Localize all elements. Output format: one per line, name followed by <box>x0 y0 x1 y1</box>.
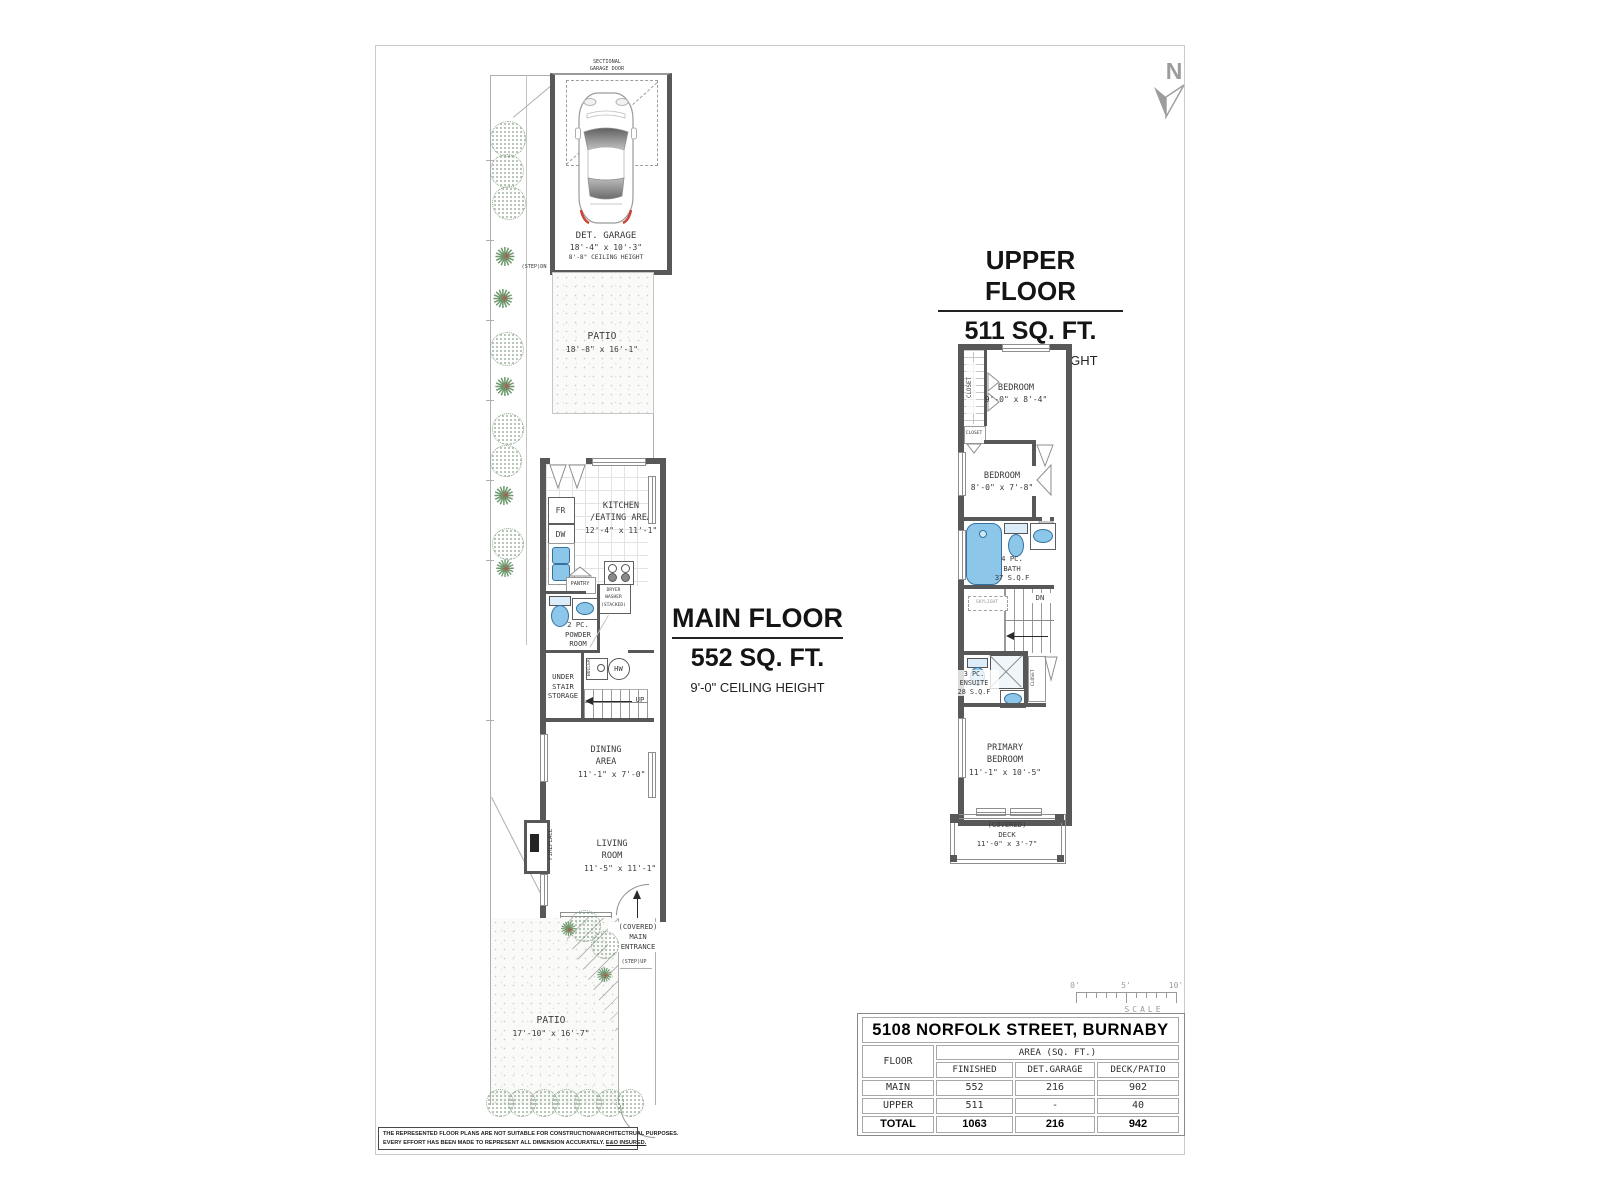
scale-major-tick <box>1076 992 1077 1003</box>
disclaimer-line2-text: EVERY EFFORT HAS BEEN MADE TO REPRESENT … <box>383 1140 606 1146</box>
label-line: GARAGE DOOR <box>562 66 652 73</box>
wall <box>546 718 654 722</box>
kitchen-side-window <box>648 476 656 524</box>
fridge-label: FR <box>548 505 573 517</box>
floor-header-cell: FLOOR <box>862 1045 934 1078</box>
label-line: (COVERED) <box>608 922 668 932</box>
room-name: ROOM <box>584 850 640 862</box>
bath-label: 4 PC. BATH 37 S.Q.F <box>984 554 1040 583</box>
starburst-plant: ✺✳ <box>493 483 515 509</box>
room-name: AREA <box>578 756 634 768</box>
room-ceiling: 8'-8" CEILING HEIGHT <box>552 254 660 263</box>
room-name: BEDROOM <box>980 382 1052 394</box>
living-label: LIVING ROOM 11'-5" x 11'-1" <box>584 838 640 875</box>
shrub-plant <box>591 931 619 959</box>
fence-tick <box>486 240 494 241</box>
row-total-garage: 216 <box>1015 1116 1095 1133</box>
dishwasher-label: DW <box>548 529 573 541</box>
under-stair-storage-label: UNDER STAIR STORAGE <box>539 672 587 701</box>
row-upper-finished: 511 <box>936 1098 1013 1114</box>
label-line: (STACKED) <box>598 602 629 609</box>
label-line: 11'-0" x 3'-7" <box>962 839 1052 849</box>
row-total-deck: 942 <box>1097 1116 1179 1133</box>
scale-major-tick <box>1126 992 1127 1003</box>
bedroom2-label: BEDROOM 8'-0" x 7'-8" <box>966 470 1038 494</box>
room-dims: 12'-4" x 11'-1" <box>585 525 657 537</box>
living-window <box>540 874 548 906</box>
main-floor-title-block: MAIN FLOOR 552 SQ. FT. 9'-0" CEILING HEI… <box>665 603 850 695</box>
yard-inner-line <box>526 75 527 645</box>
room-name: BEDROOM <box>966 754 1044 766</box>
fence-tick <box>486 560 494 561</box>
label-line: 4 PC. <box>984 554 1040 564</box>
scale-tick-5: 5' <box>1119 980 1133 992</box>
label-line: 2 PC. <box>552 620 604 630</box>
dining-label: DINING AREA 11'-1" x 7'-0" <box>578 744 634 781</box>
step-line <box>620 968 652 969</box>
shrub-plant <box>490 445 522 477</box>
col-header-deck: DECK/PATIO <box>1097 1062 1179 1078</box>
row-upper-deck: 40 <box>1097 1098 1179 1114</box>
shrub-plant <box>490 121 526 157</box>
boiler-dial-icon <box>597 664 605 672</box>
burner-icon <box>608 564 617 573</box>
shrub-plant <box>492 186 526 220</box>
tub-drain-icon <box>979 530 987 538</box>
garage-label: DET. GARAGE 18'-4" x 10'-3" 8'-8" CEILIN… <box>552 229 660 263</box>
fence-tick <box>486 320 494 321</box>
label-line: 3 PC. <box>949 670 999 679</box>
deck-post <box>950 814 959 823</box>
car-top-view <box>575 88 637 228</box>
row-main-deck: 902 <box>1097 1080 1179 1096</box>
dn-label: DN <box>1028 593 1052 603</box>
wall <box>1032 442 1036 466</box>
shrub-plant <box>616 1089 644 1117</box>
starburst-plant: ✺✳ <box>596 966 613 986</box>
stair-rail <box>1004 620 1054 621</box>
deck-post <box>1057 855 1064 862</box>
label-line: (COVERED) <box>962 820 1052 830</box>
deck-post <box>1055 814 1064 823</box>
stair-arrow-line <box>1012 636 1048 637</box>
main-floor-title: MAIN FLOOR <box>672 603 843 639</box>
bedroom1-label: BEDROOM 9'-0" x 8'-4" <box>980 382 1052 406</box>
wall <box>964 517 1042 521</box>
kitchen-label: KITCHEN /EATING AREA 12'-4" x 11'-1" <box>585 500 657 537</box>
wall <box>964 703 1046 707</box>
disclaimer-eo-insured: E&O INSURED. <box>606 1140 646 1146</box>
row-main-name: MAIN <box>862 1080 934 1096</box>
scale-tick-0: 0' <box>1068 980 1082 992</box>
room-name: PRIMARY <box>966 742 1044 754</box>
label-line: 28 S.Q.F <box>949 688 999 697</box>
row-upper-name: UPPER <box>862 1098 934 1114</box>
shrub-plant <box>490 154 524 188</box>
label-line: UNDER <box>539 672 587 682</box>
pantry-label: PANTRY <box>566 581 594 589</box>
disclaimer-line2: EVERY EFFORT HAS BEEN MADE TO REPRESENT … <box>383 1139 633 1148</box>
area-header-cell: AREA (SQ. FT.) <box>936 1045 1179 1060</box>
room-dims: 11'-1" x 10'-5" <box>966 767 1044 779</box>
room-name: DET. GARAGE <box>552 229 660 242</box>
room-dims: 9'-0" x 8'-4" <box>980 394 1052 406</box>
label-line: ENSUITE <box>949 679 999 688</box>
wall <box>546 650 600 653</box>
dining-side-window <box>648 752 656 798</box>
starburst-plant: ✺✳ <box>495 558 515 582</box>
room-name: DINING <box>578 744 634 756</box>
label-line: BATH <box>984 564 1040 574</box>
burner-icon <box>621 573 630 582</box>
ensuite-label: 3 PC. ENSUITE 28 S.Q.F <box>949 670 999 696</box>
row-main-finished: 552 <box>936 1080 1013 1096</box>
wall <box>628 650 654 653</box>
sink-basin <box>552 547 570 564</box>
room-dims: 18'-4" x 10'-3" <box>552 242 660 254</box>
bath-window <box>958 530 966 580</box>
sectional-garage-door-label: SECTIONAL GARAGE DOOR <box>562 59 652 73</box>
label-line: DECK <box>962 830 1052 840</box>
step-dn-label: (STEP)DN <box>512 264 556 272</box>
dining-window <box>540 734 548 782</box>
main-floor-area: 552 SQ. FT. <box>665 644 850 673</box>
room-name: LIVING <box>584 838 640 850</box>
entry-arrow-line <box>637 898 638 920</box>
kitchen-window <box>592 458 646 466</box>
upper-floor-area: 511 SQ. FT. <box>938 317 1123 346</box>
scale-major-tick <box>1176 992 1177 1003</box>
starburst-plant: ✺✳ <box>494 374 516 400</box>
fence-tick <box>486 720 494 721</box>
primary-window <box>958 718 966 778</box>
north-arrow-icon <box>1148 84 1188 120</box>
pantry-door-swing-icon <box>568 566 592 577</box>
bedroom1-window <box>1002 344 1050 352</box>
room-dims: 18'-8" x 16'-1" <box>552 344 652 356</box>
boiler-label: BOILER <box>587 659 595 677</box>
row-total-finished: 1063 <box>936 1116 1013 1133</box>
stair-arrow-head <box>585 697 593 705</box>
burner-icon <box>621 564 630 573</box>
upper-floor-title: UPPER FLOOR <box>938 245 1123 312</box>
patio-bottom-label: PATIO 17'-10" x 16'-7" <box>496 1014 606 1040</box>
step-up-label: (STEP)UP <box>612 959 656 967</box>
up-label: UP <box>630 695 650 705</box>
row-main-garage: 216 <box>1015 1080 1095 1096</box>
shrub-plant <box>490 332 524 366</box>
room-name: PATIO <box>496 1014 606 1028</box>
primary-bedroom-label: PRIMARY BEDROOM 11'-1" x 10'-5" <box>966 742 1044 779</box>
firebox <box>530 834 539 852</box>
disclaimer-box: THE REPRESENTED FLOOR PLANS ARE NOT SUIT… <box>378 1127 638 1150</box>
closet1-label: CLOSET <box>966 362 976 414</box>
patio-top-label: PATIO 18'-8" x 16'-1" <box>552 330 652 356</box>
skylight-label: SKYLIGHT <box>968 600 1006 607</box>
address-title: 5108 NORFOLK STREET, BURNABY <box>862 1017 1179 1043</box>
room-name: BEDROOM <box>966 470 1038 482</box>
room-dims: 11'-1" x 7'-0" <box>578 769 634 781</box>
burner-icon <box>608 573 617 582</box>
deck-label: (COVERED) DECK 11'-0" x 3'-7" <box>962 820 1052 849</box>
room-dims: 8'-0" x 7'-8" <box>966 482 1038 494</box>
label-line: 37 S.Q.F <box>984 573 1040 583</box>
wall <box>546 591 586 594</box>
label-line: DRYER <box>598 587 629 594</box>
label-line: STORAGE <box>539 691 587 701</box>
label-line: STAIR <box>539 682 587 692</box>
closet3-label: CLOSET <box>1031 662 1040 694</box>
fence-tick <box>486 400 494 401</box>
starburst-plant: ✺✳ <box>560 920 577 940</box>
starburst-plant: ✺✳ <box>492 286 514 312</box>
patio-door-swing-icon <box>549 464 587 490</box>
wall <box>1032 496 1036 517</box>
laundry-label: DRYER WASHER (STACKED) <box>598 587 629 609</box>
hot-water-label: HW <box>608 664 629 674</box>
room-name: KITCHEN <box>585 500 657 512</box>
bedroom2-window <box>958 452 966 496</box>
stair-arrow-line <box>592 701 632 702</box>
row-total-name: TOTAL <box>862 1116 934 1133</box>
closet2-label: CLOSET <box>964 431 984 438</box>
disclaimer-line1: THE REPRESENTED FLOOR PLANS ARE NOT SUIT… <box>383 1130 633 1139</box>
powder-sink <box>576 602 594 615</box>
wall <box>984 440 1036 444</box>
toilet-tank <box>1004 523 1028 534</box>
deck-post <box>950 855 957 862</box>
bath-sink <box>1033 529 1053 543</box>
floor-plan-page: ✺✳ ✺✳ ✺✳ ✺✳ ✺✳ SECTIONAL GARAGE DO <box>0 0 1600 1200</box>
room-dims: 17'-10" x 16'-7" <box>496 1028 606 1040</box>
stair-arrow-head <box>1006 632 1014 640</box>
col-header-garage: DET.GARAGE <box>1015 1062 1095 1078</box>
north-label: N <box>1160 58 1188 85</box>
primary-door-swing-icon <box>1044 656 1058 682</box>
closet2-door-swing-icon <box>966 443 982 455</box>
room-name: PATIO <box>552 330 652 344</box>
label-line: ROOM <box>552 639 604 649</box>
entry-arrow-head <box>633 890 641 899</box>
label-line: SECTIONAL <box>562 59 652 66</box>
row-upper-garage: - <box>1015 1098 1095 1114</box>
fireplace-label: FIREPLACE <box>547 820 558 868</box>
room-name: /EATING AREA <box>585 512 657 524</box>
label-line: WASHER <box>598 594 629 601</box>
shrub-plant <box>492 413 524 445</box>
scale-tick-10: 10' <box>1166 980 1186 992</box>
col-header-finished: FINISHED <box>936 1062 1013 1078</box>
main-floor-ceiling: 9'-0" CEILING HEIGHT <box>665 680 850 695</box>
bedroom2-door-swing-icon <box>1036 464 1052 496</box>
room-dims: 11'-5" x 11'-1" <box>584 863 640 875</box>
